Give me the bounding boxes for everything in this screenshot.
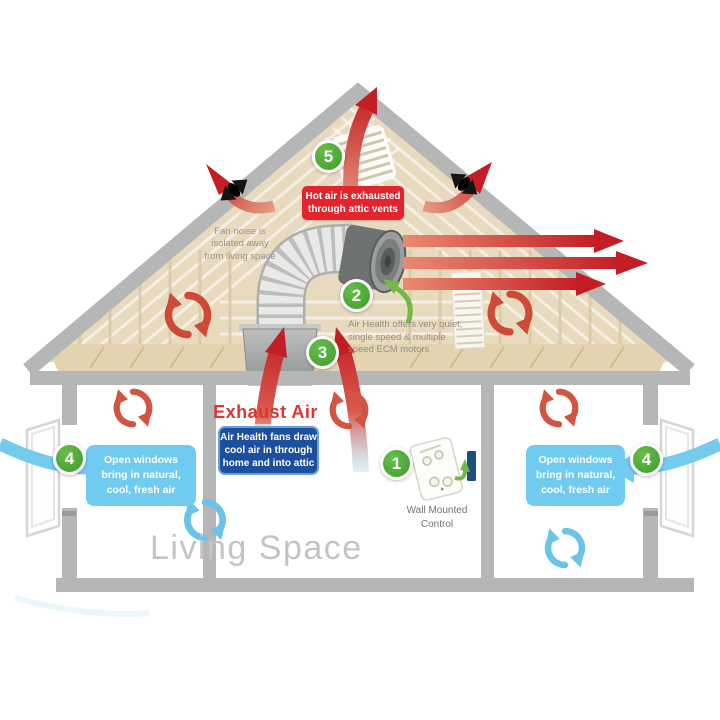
- open-windows-callout-left: Open windows bring in natural, cool, fre…: [86, 445, 196, 506]
- callout-badge-3: 3: [306, 336, 339, 369]
- callout-badge-5: 5: [312, 140, 345, 173]
- left-window: [27, 420, 59, 536]
- interior-wall-right: [481, 385, 494, 580]
- right-window: [661, 420, 693, 536]
- wall-control-plate-icon: [467, 451, 476, 481]
- right-exterior-wall: [643, 385, 658, 580]
- house-cross-section-art: [0, 0, 720, 720]
- callout-badge-4-left: 4: [53, 442, 86, 475]
- wall-mounted-control-label: Wall Mounted Control: [398, 504, 476, 531]
- callout-badge-4-right: 4: [630, 443, 663, 476]
- room-air-swirl-icon: [114, 389, 152, 427]
- fan-noise-note: Fan noise is isolated away from living s…: [190, 226, 290, 263]
- room-air-swirl-icon: [540, 389, 578, 427]
- fans-draw-callout: Air Health fans draw cool air in through…: [218, 426, 319, 475]
- whole-house-fan-diagram: Fan noise is isolated away from living s…: [0, 0, 720, 720]
- ceiling: [30, 371, 690, 385]
- fan-exhaust-arrows: [403, 229, 648, 296]
- living-space-label: Living Space: [150, 529, 363, 568]
- callout-badge-2: 2: [340, 279, 373, 312]
- ground-reflection: [15, 598, 150, 614]
- floor: [56, 578, 694, 592]
- exhaust-air-label: Exhaust Air: [198, 402, 333, 423]
- cool-air-swirl-icon: [546, 529, 585, 568]
- wall-control-device-icon: [409, 437, 463, 501]
- left-exterior-wall: [62, 385, 77, 580]
- hot-air-exhaust-callout: Hot air is exhausted through attic vents: [302, 186, 404, 220]
- open-windows-callout-right: Open windows bring in natural, cool, fre…: [526, 445, 625, 506]
- callout-badge-1: 1: [380, 447, 413, 480]
- motors-note: Air Health offers very quiet, single spe…: [348, 319, 478, 357]
